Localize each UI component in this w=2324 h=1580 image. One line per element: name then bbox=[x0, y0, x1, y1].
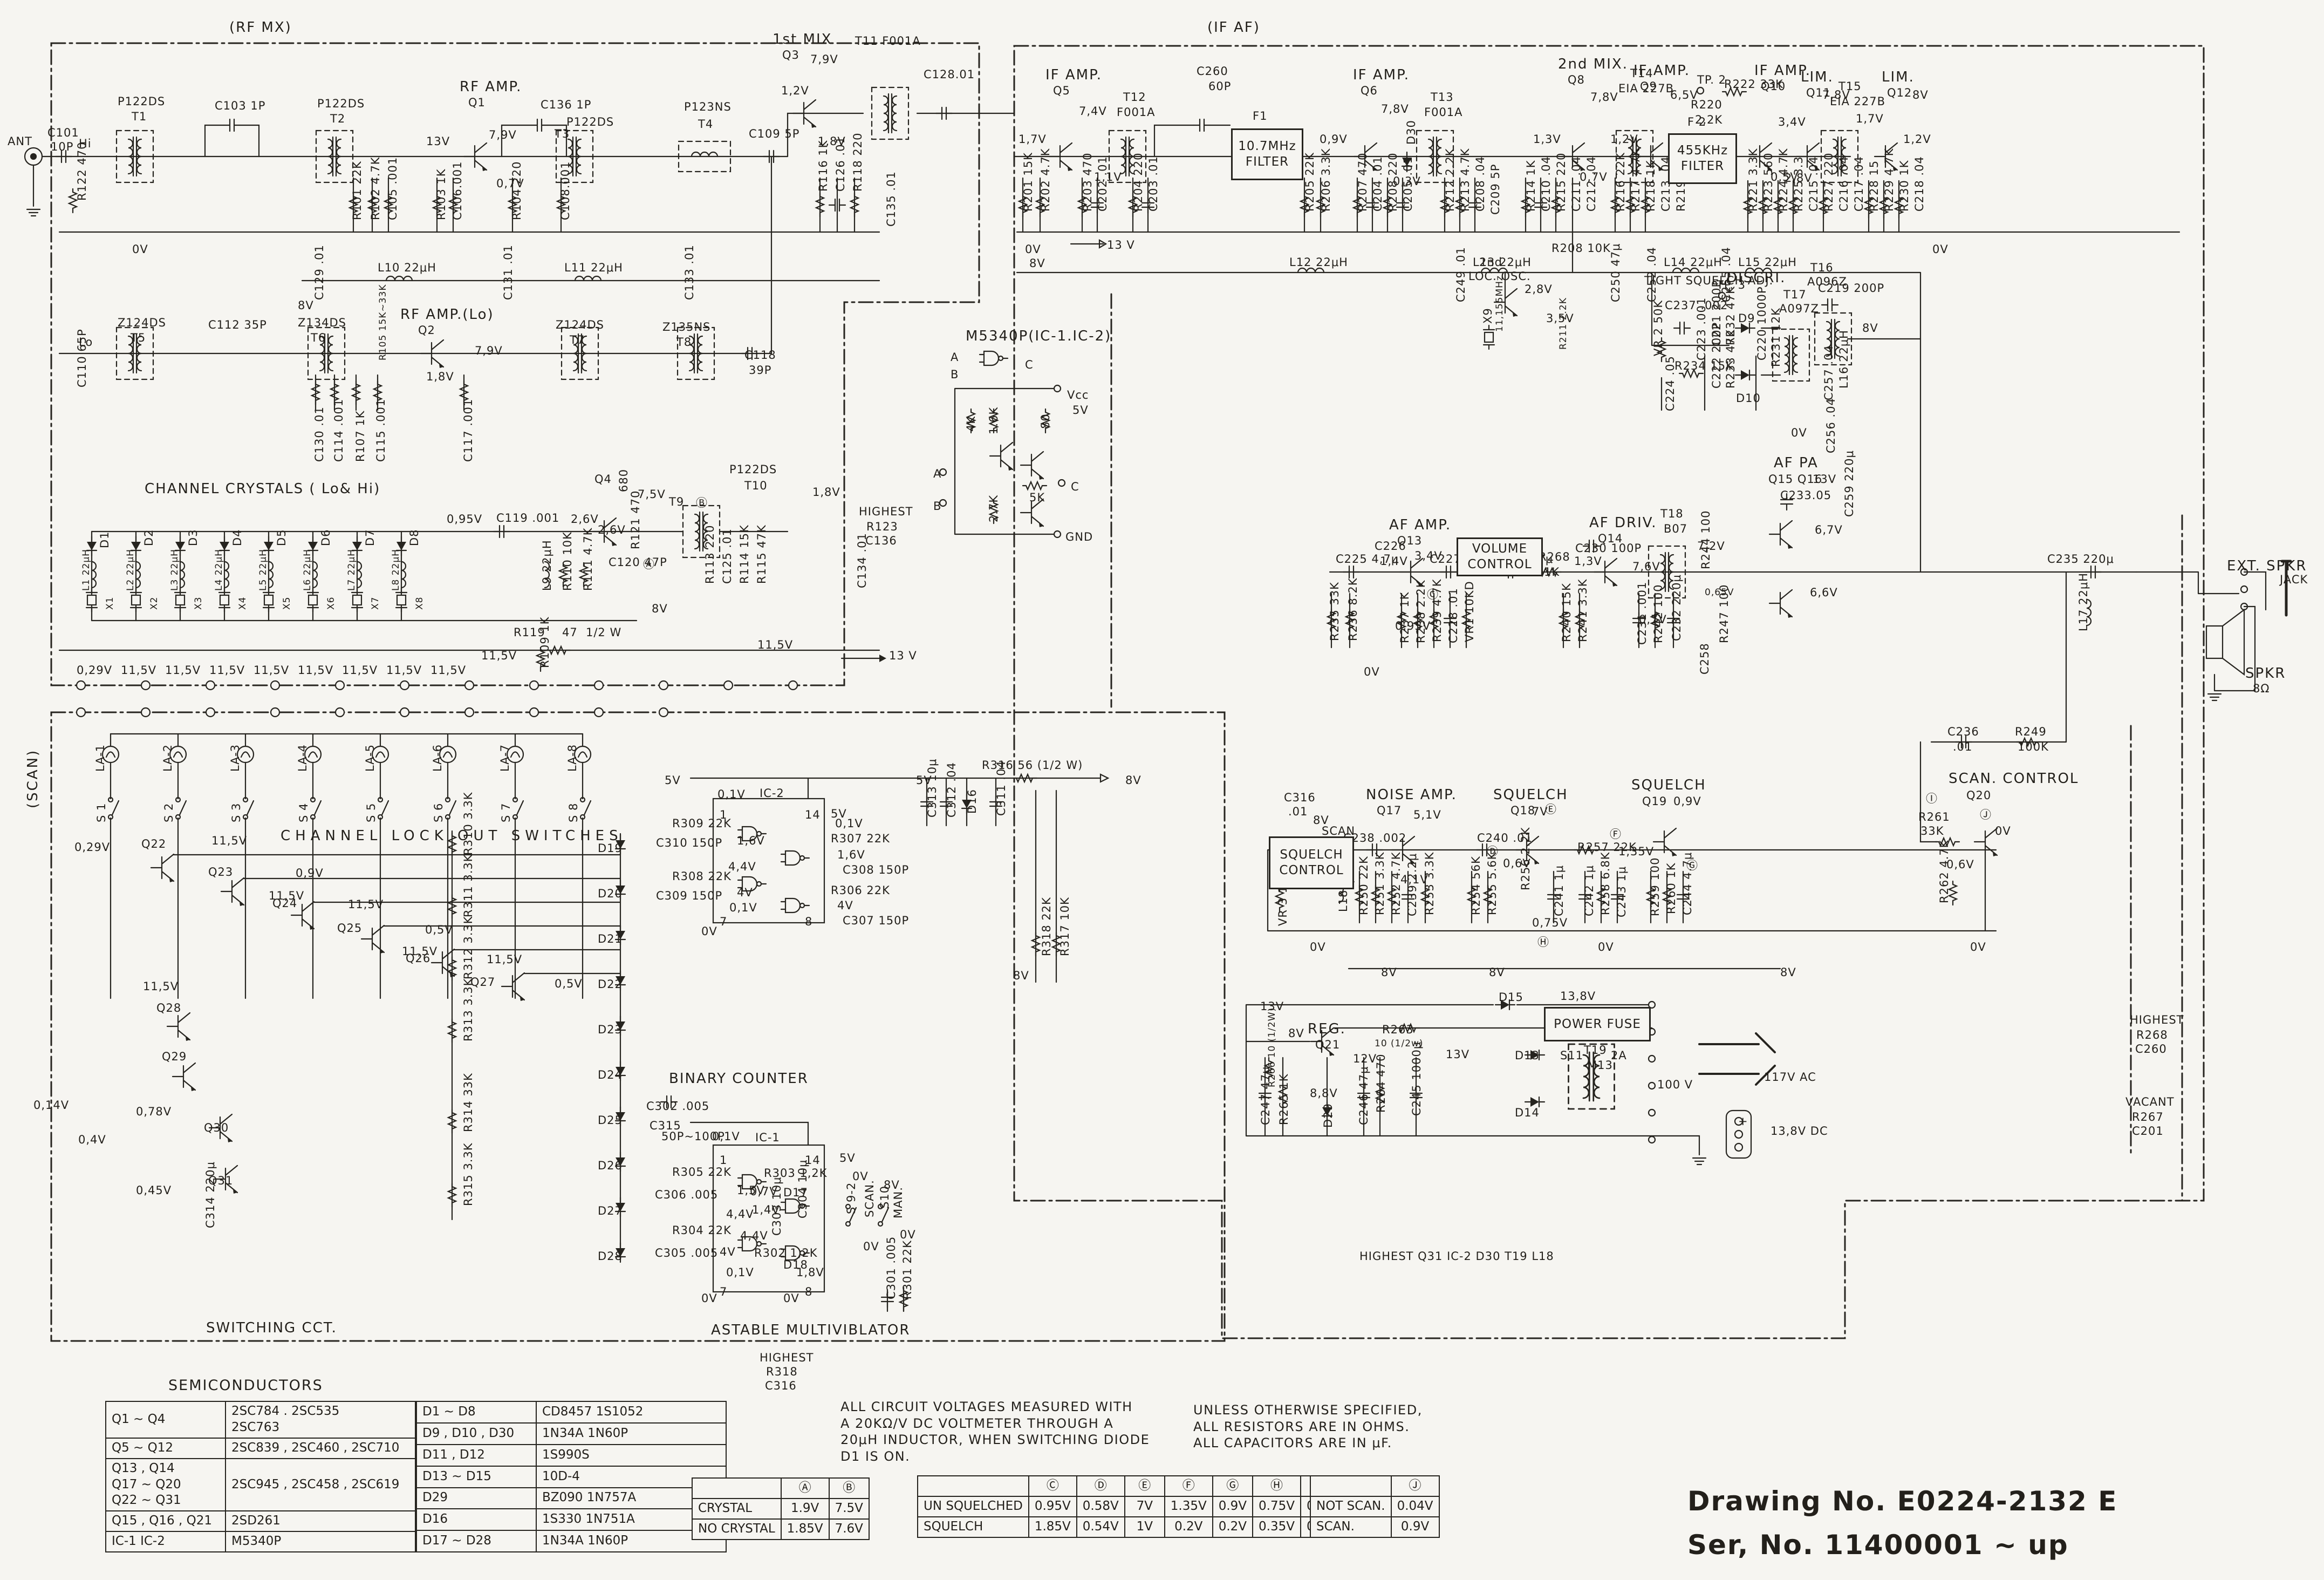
schematic-label: Ⓗ bbox=[1537, 937, 1549, 948]
schematic-label: C129 .01 bbox=[314, 244, 325, 300]
schematic-label: 39P bbox=[749, 365, 771, 376]
schematic-label: L17 22μH bbox=[2078, 573, 2089, 631]
schematic-label: 1,7V bbox=[1856, 113, 1884, 125]
schematic-label: C226 bbox=[1375, 541, 1406, 552]
schematic-label: C305 .005 bbox=[655, 1248, 718, 1259]
schematic-label: 8V bbox=[1013, 970, 1029, 982]
schematic-label: 1,8V bbox=[812, 487, 840, 498]
schematic-label: Ⓘ bbox=[1926, 793, 1938, 805]
schematic-label: 11,5V bbox=[386, 665, 422, 676]
schematic-label: SWITCHING CCT. bbox=[206, 1321, 337, 1335]
schematic-label: R252 4.7K bbox=[1391, 852, 1402, 915]
schematic-page: (RF MX)(IF AF)(SCAN)ANTHiLoP122DST1C103 … bbox=[0, 0, 2324, 1580]
schematic-label: C109 5P bbox=[749, 128, 799, 140]
schematic-label: MAN. bbox=[893, 1187, 904, 1218]
schematic-label: HIGHEST bbox=[859, 506, 913, 517]
crystal-voltage-table: ⒶⒷCRYSTAL1.9V7.5VNO CRYSTAL1.85V7.6V bbox=[692, 1477, 870, 1540]
schematic-label: B07 bbox=[1664, 523, 1687, 535]
table-header-cell bbox=[918, 1476, 1029, 1496]
schematic-label: X7 bbox=[371, 597, 380, 610]
schematic-label: 13V bbox=[426, 136, 450, 147]
schematic-label: R215 220 bbox=[1556, 153, 1567, 212]
schematic-label: 11,5V bbox=[298, 665, 333, 676]
schematic-label: C235 220μ bbox=[2047, 554, 2114, 565]
schematic-label: Q21 bbox=[1315, 1039, 1340, 1051]
part-designators: D9 , D10 , D30 bbox=[416, 1423, 536, 1445]
semiconductors-title: SEMICONDUCTORS bbox=[168, 1377, 323, 1394]
schematic-label: 2nd bbox=[1479, 257, 1502, 268]
schematic-label: 0V bbox=[783, 1293, 799, 1304]
schematic-label: D14 bbox=[1515, 1107, 1540, 1119]
scan-voltage-table: ⒿNOT SCAN.0.04VSCAN.0.9V bbox=[1310, 1475, 1440, 1538]
schematic-label: C303 10μ bbox=[771, 1176, 783, 1236]
schematic-label: Q24 bbox=[272, 898, 297, 909]
schematic-label: R107 1K bbox=[355, 411, 366, 462]
function-block-label: 10.7MHz bbox=[1238, 139, 1296, 154]
schematic-label: 6,7V bbox=[1815, 525, 1843, 536]
table-row-label: NOT SCAN. bbox=[1310, 1496, 1391, 1517]
schematic-label: C258 bbox=[1699, 643, 1711, 675]
schematic-label: 60P bbox=[1208, 81, 1231, 92]
schematic-label: R240 15K bbox=[1561, 583, 1573, 642]
schematic-label: Q10 bbox=[1761, 81, 1786, 92]
schematic-label: C249 .01 bbox=[1455, 247, 1467, 302]
schematic-label: 13,8V DC bbox=[1771, 1126, 1828, 1137]
schematic-label: SCAN. bbox=[864, 1180, 876, 1217]
schematic-label: R201 15K bbox=[1023, 152, 1034, 212]
schematic-label: REG. bbox=[1308, 1022, 1346, 1036]
schematic-label: R113 220 bbox=[705, 525, 716, 584]
schematic-label: R218 1K bbox=[1645, 160, 1657, 212]
schematic-label: R211 2.2K bbox=[1559, 297, 1568, 350]
schematic-label: LIM. bbox=[1801, 70, 1834, 84]
schematic-label: HIGHEST Q31 IC-2 D30 T19 L18 bbox=[1359, 1251, 1554, 1262]
schematic-label: R105 15K~33K bbox=[379, 284, 388, 360]
schematic-label: LA-8 bbox=[567, 744, 578, 772]
schematic-label: X5 bbox=[283, 597, 292, 610]
schematic-label: R206 3.3K bbox=[1321, 148, 1332, 212]
schematic-label: C219 200P bbox=[1818, 283, 1884, 294]
schematic-label: 4V bbox=[837, 900, 853, 911]
schematic-label: M13 bbox=[1587, 1060, 1613, 1071]
schematic-label: 11,5V bbox=[757, 639, 793, 651]
schematic-label: 0V bbox=[1310, 942, 1326, 953]
serial-number: Ser, No. 11400001 ~ up bbox=[1687, 1523, 2117, 1567]
schematic-label: L5 22μH bbox=[259, 549, 268, 591]
schematic-label: LA-1 bbox=[95, 744, 106, 772]
schematic-label: 4V bbox=[720, 1247, 736, 1258]
schematic-label: C bbox=[1025, 359, 1034, 371]
schematic-label: 0,9V bbox=[1320, 134, 1348, 145]
table-value-cell: 7V bbox=[1125, 1496, 1165, 1517]
schematic-label: 11,5V bbox=[342, 665, 378, 676]
schematic-label: S 6 bbox=[433, 803, 445, 822]
part-numbers: 2SC945 , 2SC458 , 2SC619 bbox=[225, 1459, 415, 1511]
table-value-cell: 7.6V bbox=[829, 1519, 869, 1540]
schematic-label: R263 bbox=[1382, 1024, 1414, 1036]
table-value-cell: 1.9V bbox=[781, 1499, 829, 1519]
schematic-label: 1K bbox=[1544, 567, 1560, 578]
schematic-label: A097Z bbox=[1779, 303, 1819, 315]
schematic-label: 0V bbox=[863, 1241, 879, 1252]
table-value-cell: 0.58V bbox=[1077, 1496, 1125, 1517]
schematic-label: R250 22K bbox=[1358, 856, 1370, 915]
schematic-label: B bbox=[951, 369, 959, 380]
schematic-label: R122 470 bbox=[77, 142, 88, 201]
schematic-label: C211 .04 bbox=[1571, 156, 1582, 212]
part-numbers: 1S990S bbox=[536, 1445, 726, 1466]
schematic-label: R109 1K bbox=[539, 617, 551, 668]
schematic-label: 5V bbox=[665, 775, 681, 786]
schematic-label: Q17 bbox=[1377, 805, 1402, 816]
schematic-label: 0V bbox=[1995, 826, 2011, 837]
schematic-label: D10 bbox=[1736, 393, 1761, 404]
schematic-label: + bbox=[1738, 1116, 1748, 1127]
schematic-label: R104 220 bbox=[511, 161, 523, 220]
schematic-label: C246 47μ bbox=[1358, 1066, 1370, 1125]
schematic-label: 0,45V bbox=[136, 1185, 172, 1196]
schematic-label: C202 .01 bbox=[1097, 156, 1109, 212]
schematic-label: EIA 227B bbox=[1830, 96, 1885, 107]
schematic-label: 8V bbox=[1862, 323, 1878, 334]
schematic-label: .01 bbox=[1288, 806, 1308, 818]
schematic-label: 680 bbox=[618, 469, 630, 492]
schematic-label: D29 bbox=[1323, 1103, 1334, 1128]
schematic-label: 11,5V bbox=[143, 981, 179, 992]
schematic-label: T11 F001A bbox=[855, 36, 921, 47]
schematic-label: 1,3V bbox=[1533, 134, 1561, 145]
schematic-label: EXT. SPKR bbox=[2227, 559, 2307, 573]
schematic-label: A bbox=[933, 468, 941, 480]
schematic-label: Q1 bbox=[468, 97, 486, 108]
schematic-label: 8V bbox=[652, 603, 668, 615]
schematic-label: 0,1V bbox=[835, 818, 863, 829]
schematic-label: D15 bbox=[1499, 992, 1523, 1003]
schematic-label: C256 .04 bbox=[1826, 398, 1837, 453]
schematic-label: NOISE AMP. bbox=[1366, 788, 1457, 802]
schematic-label: 4,4V bbox=[726, 1209, 754, 1220]
table-value-cell: 1.85V bbox=[781, 1519, 829, 1540]
schematic-label: D28 bbox=[598, 1251, 623, 1262]
schematic-label: R115 47K bbox=[756, 525, 768, 584]
schematic-label: R238 2.2K bbox=[1416, 580, 1427, 643]
schematic-label: C209 5P bbox=[1490, 164, 1501, 215]
schematic-label: 0,75V bbox=[1532, 917, 1568, 929]
schematic-label: R216 22K bbox=[1615, 152, 1626, 212]
schematic-label: R227 220 bbox=[1823, 153, 1835, 212]
function-block-label: POWER FUSE bbox=[1554, 1017, 1641, 1032]
schematic-label: R249 bbox=[2015, 726, 2047, 738]
schematic-label: T10 bbox=[744, 480, 768, 492]
schematic-label: T6 bbox=[311, 332, 326, 344]
schematic-label: C312 .04 bbox=[946, 762, 958, 818]
schematic-label: D20 bbox=[598, 888, 623, 900]
schematic-label: D4 bbox=[232, 529, 243, 546]
schematic-label: C128.01 bbox=[924, 69, 975, 80]
schematic-label: Z124DS bbox=[118, 317, 166, 329]
schematic-label: T16 bbox=[1810, 262, 1834, 274]
schematic-label: S 3 bbox=[231, 803, 242, 822]
schematic-label: 1,35V bbox=[1618, 846, 1654, 857]
schematic-label: C236 bbox=[1947, 726, 1979, 738]
squelch-voltage-table: ⒸⒹⒺⒻⒼⒽⒾUN SQUELCHED0.95V0.58V7V1.35V0.9V… bbox=[917, 1475, 1341, 1538]
schematic-label: C133 .01 bbox=[684, 244, 695, 300]
schematic-label: 8V bbox=[1029, 258, 1045, 269]
schematic-label: C136 1P bbox=[541, 99, 591, 111]
schematic-label: LA-5 bbox=[365, 744, 376, 772]
schematic-label: R239 4.7K bbox=[1432, 578, 1443, 642]
schematic-label: 0,95V bbox=[447, 514, 482, 525]
schematic-label: 13 V bbox=[1107, 240, 1135, 251]
schematic-label: C115 .001 bbox=[375, 399, 387, 462]
schematic-label: Q5 bbox=[1053, 85, 1070, 97]
schematic-label: 80 bbox=[1040, 413, 1051, 429]
schematic-label: LIM. bbox=[1882, 70, 1915, 84]
schematic-label: S 1 bbox=[96, 803, 107, 822]
part-designators: Q13 , Q14Q17 ~ Q20Q22 ~ Q31 bbox=[106, 1459, 225, 1511]
schematic-label: C119 .001 bbox=[496, 513, 559, 524]
schematic-label: R264 470 bbox=[1376, 1054, 1387, 1113]
schematic-label: L18 bbox=[1338, 890, 1349, 912]
schematic-label: R260 1K bbox=[1666, 863, 1677, 914]
schematic-label: D5 bbox=[276, 529, 288, 546]
schematic-label: L9 22μH bbox=[542, 540, 553, 591]
schematic-label: T2 bbox=[330, 113, 345, 125]
schematic-label: 0V bbox=[701, 926, 717, 937]
table-header-cell: Ⓔ bbox=[1125, 1476, 1165, 1496]
schematic-label: 1,6V bbox=[837, 849, 865, 861]
schematic-label: R309 22K bbox=[672, 818, 732, 829]
schematic-label: T17 bbox=[1783, 289, 1807, 301]
schematic-label: R302 1,2K bbox=[754, 1248, 818, 1259]
schematic-label: R261 bbox=[1918, 812, 1950, 823]
schematic-label: R253 3.3K bbox=[1424, 852, 1436, 915]
part-designators: Q5 ~ Q12 bbox=[106, 1438, 225, 1459]
schematic-label: Q4 bbox=[594, 474, 612, 485]
schematic-label: D30 bbox=[1406, 120, 1417, 145]
schematic-label: Ⓙ bbox=[1980, 809, 1992, 821]
schematic-label: 0V bbox=[1364, 666, 1380, 678]
schematic-label: R223 560 bbox=[1763, 153, 1774, 212]
schematic-label: B bbox=[933, 501, 941, 512]
table-value-cell: 0.95V bbox=[1029, 1496, 1077, 1517]
schematic-label: T12 bbox=[1123, 92, 1146, 103]
schematic-label: 5,1V bbox=[1413, 809, 1441, 821]
schematic-label: R256 2.2K bbox=[1520, 827, 1532, 890]
table-header-cell: Ⓓ bbox=[1077, 1476, 1125, 1496]
schematic-label: R255 5.6K bbox=[1487, 852, 1498, 915]
schematic-label: R203 470 bbox=[1082, 153, 1093, 212]
table-value-cell: 0.04V bbox=[1391, 1496, 1439, 1517]
schematic-label: S 7 bbox=[501, 803, 512, 822]
schematic-label: R244 100 bbox=[1700, 510, 1712, 569]
schematic-label: C233.05 bbox=[1780, 490, 1831, 501]
schematic-label: 11,5V bbox=[211, 835, 247, 847]
schematic-label: Q28 bbox=[156, 1003, 181, 1014]
schematic-label: C301 .005 bbox=[886, 1236, 897, 1299]
schematic-label: 11,5V bbox=[121, 665, 156, 676]
title-block: Drawing No. E0224-2132 E Ser, No. 114000… bbox=[1687, 1480, 2117, 1567]
schematic-label: C112 35P bbox=[208, 319, 267, 331]
schematic-label: Vcc bbox=[1067, 390, 1089, 401]
schematic-label: C101 bbox=[47, 127, 79, 139]
table-value-cell: 0.2V bbox=[1165, 1517, 1213, 1537]
schematic-label: 7,9V bbox=[810, 54, 838, 65]
schematic-label: DISCRI. bbox=[1726, 271, 1786, 285]
schematic-label: IF AMP. bbox=[1045, 68, 1102, 82]
schematic-label: Q29 bbox=[162, 1051, 187, 1063]
schematic-label: T7 bbox=[570, 335, 585, 346]
schematic-label: D23 bbox=[598, 1024, 623, 1036]
schematic-label: L3 22μH bbox=[170, 549, 180, 591]
schematic-label: C313 10μ bbox=[927, 758, 938, 818]
schematic-label: 4,4V bbox=[728, 861, 756, 873]
part-numbers: 2SC784 . 2SC5352SC763 bbox=[225, 1401, 415, 1438]
schematic-label: C117 .001 bbox=[463, 399, 474, 462]
schematic-label: R205 22K bbox=[1304, 152, 1316, 212]
schematic-label: 1,2V bbox=[781, 85, 809, 97]
schematic-label: VACANT bbox=[2125, 1097, 2175, 1108]
schematic-label: C228 .01 bbox=[1448, 588, 1459, 643]
schematic-label: L1 22μH bbox=[82, 549, 91, 591]
function-block-label: FILTER bbox=[1246, 154, 1289, 170]
schematic-label: D16 bbox=[967, 789, 978, 814]
schematic-label: R259 100 bbox=[1650, 857, 1661, 916]
schematic-label: 1,8V bbox=[426, 371, 454, 383]
schematic-label: 11,5V bbox=[348, 899, 384, 910]
table-header-cell: Ⓙ bbox=[1391, 1476, 1439, 1496]
schematic-label: R267 bbox=[2132, 1112, 2164, 1123]
schematic-label: C108.001 bbox=[560, 161, 571, 220]
schematic-label: 0V bbox=[1932, 244, 1949, 255]
part-numbers: 2SD261 bbox=[225, 1511, 415, 1531]
schematic-label: R204 220 bbox=[1133, 153, 1144, 212]
schematic-label: IC-2 bbox=[760, 788, 784, 799]
note-line: A 20KΩ/V DC VOLTMETER THROUGH A bbox=[840, 1415, 1150, 1432]
schematic-label: LA-3 bbox=[230, 744, 241, 772]
schematic-label: SCAN. CONTROL bbox=[1949, 772, 2079, 786]
schematic-label: Q9 bbox=[1640, 81, 1657, 92]
schematic-label: 0V bbox=[1025, 244, 1041, 255]
schematic-label: C208 .04 bbox=[1475, 156, 1486, 212]
schematic-label: L15 22μH bbox=[1738, 257, 1797, 268]
schematic-label: 8 bbox=[805, 916, 812, 928]
part-designators: Q15 , Q16 , Q21 bbox=[106, 1511, 225, 1531]
schematic-label: 12V bbox=[1353, 1053, 1377, 1065]
table-row-label: NO CRYSTAL bbox=[692, 1519, 781, 1540]
note-line: UNLESS OTHERWISE SPECIFIED, bbox=[1193, 1402, 1423, 1419]
schematic-label: C126 .01 bbox=[835, 136, 846, 192]
schematic-label: AF AMP. bbox=[1389, 518, 1451, 532]
note-line: 20μH INDUCTOR, WHEN SWITCHING DIODE bbox=[840, 1432, 1150, 1448]
function-block-label: SQUELCH bbox=[1280, 847, 1343, 863]
schematic-label: C114 .001 bbox=[333, 399, 345, 462]
schematic-label: X8 bbox=[415, 597, 425, 610]
schematic-label: R229 4.7K bbox=[1884, 148, 1895, 212]
schematic-label: 117V AC bbox=[1764, 1072, 1816, 1083]
schematic-label: T1 bbox=[132, 111, 147, 122]
table-value-cell: 0.9V bbox=[1391, 1517, 1439, 1537]
schematic-label: 0V bbox=[132, 244, 148, 255]
schematic-label: 1,2V bbox=[1610, 134, 1638, 145]
schematic-label: 13V bbox=[1813, 474, 1836, 485]
schematic-label: 10P bbox=[51, 141, 73, 153]
schematic-label: C105 .001 bbox=[387, 157, 399, 220]
schematic-label: 0,9V bbox=[296, 868, 324, 879]
schematic-label: R228 15 bbox=[1869, 160, 1880, 212]
schematic-label: 13 V bbox=[889, 650, 917, 662]
note-line: D1 IS ON. bbox=[840, 1448, 1150, 1465]
table-value-cell: 0.35V bbox=[1253, 1517, 1301, 1537]
schematic-label: R254 56K bbox=[1471, 856, 1482, 915]
schematic-label: 7 bbox=[720, 1286, 727, 1298]
schematic-label: 4K bbox=[966, 416, 977, 432]
function-block-label: FILTER bbox=[1681, 159, 1724, 174]
schematic-label: R317 10K bbox=[1060, 897, 1071, 956]
schematic-label: 0,9V bbox=[1673, 796, 1701, 807]
f2-filter-box: 455KHzFILTER bbox=[1668, 133, 1737, 184]
schematic-label: C310 150P bbox=[656, 837, 722, 849]
table-header-cell: Ⓑ bbox=[829, 1478, 869, 1499]
schematic-label: R208 220 bbox=[1387, 153, 1399, 212]
schematic-label: C245 1000μ bbox=[1411, 1041, 1423, 1116]
schematic-label: HIGHEST bbox=[2130, 1014, 2184, 1026]
table-header-cell: Ⓖ bbox=[1213, 1476, 1253, 1496]
note-line: ALL CAPACITORS ARE IN μF. bbox=[1193, 1435, 1423, 1452]
schematic-label: X1 bbox=[106, 597, 115, 610]
schematic-label: Q19 bbox=[1642, 796, 1667, 807]
schematic-label: R235 33K bbox=[1329, 582, 1341, 641]
schematic-label: T15 bbox=[1838, 81, 1862, 92]
schematic-label: X4 bbox=[238, 597, 248, 610]
schematic-label: Q26 bbox=[406, 953, 430, 964]
schematic-label: C306 .005 bbox=[655, 1189, 718, 1201]
part-numbers: M5340P bbox=[225, 1531, 415, 1552]
schematic-label: 8V bbox=[1288, 1028, 1304, 1039]
schematic-label: ANT bbox=[8, 136, 32, 147]
function-block-label: VOLUME bbox=[1472, 541, 1527, 557]
schematic-label: C204 .01 bbox=[1372, 156, 1384, 212]
table-row-label: UN SQUELCHED bbox=[918, 1496, 1029, 1517]
schematic-label: 5K bbox=[1029, 492, 1045, 503]
schematic-label: 1,2V bbox=[1903, 134, 1931, 145]
table-value-cell: 1V bbox=[1125, 1517, 1165, 1537]
part-designators: D29 bbox=[416, 1488, 536, 1509]
schematic-label: L16 22μH bbox=[1838, 330, 1850, 389]
table-row-label: SCAN. bbox=[1310, 1517, 1391, 1537]
schematic-label: R311 3.3K bbox=[463, 854, 474, 917]
schematic-label: S 9-2 bbox=[846, 1182, 857, 1214]
schematic-label: Q25 bbox=[337, 923, 362, 934]
schematic-label: P122DS bbox=[729, 464, 777, 475]
schematic-label: X9 bbox=[1482, 308, 1494, 324]
schematic-label: R308 22K bbox=[672, 871, 732, 882]
schematic-label: Q12 bbox=[1887, 87, 1912, 99]
schematic-label: R217 4.7K bbox=[1630, 148, 1642, 212]
schematic-label: Q3 bbox=[782, 50, 799, 61]
schematic-label: Q30 bbox=[204, 1122, 229, 1134]
schematic-label: C223 .001 bbox=[1696, 297, 1707, 360]
spec-note: UNLESS OTHERWISE SPECIFIED,ALL RESISTORS… bbox=[1193, 1402, 1423, 1452]
schematic-label: (IF AF) bbox=[1207, 21, 1260, 35]
schematic-label: Z134DS bbox=[298, 317, 346, 329]
schematic-label: 7,8V bbox=[1381, 104, 1409, 115]
schematic-label: L6 22μH bbox=[303, 549, 312, 591]
schematic-label: 0,7V bbox=[1639, 614, 1667, 625]
schematic-label: C118 bbox=[744, 350, 776, 361]
schematic-label: C307 150P bbox=[843, 915, 909, 927]
table-header-cell: Ⓕ bbox=[1165, 1476, 1213, 1496]
